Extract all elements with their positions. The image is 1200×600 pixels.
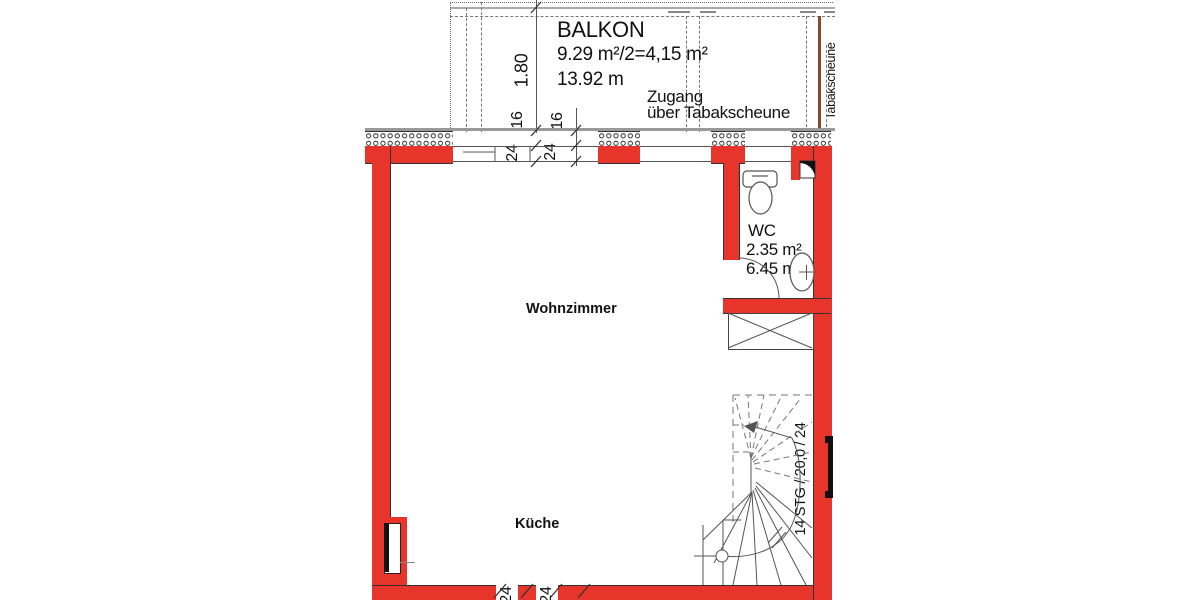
sink-icon bbox=[790, 253, 814, 291]
dimension-ticks bbox=[494, 2, 590, 598]
shaft-cross bbox=[728, 313, 812, 348]
stair-walk-line bbox=[694, 421, 800, 562]
window-wedge-marker bbox=[800, 161, 815, 178]
plan-linework bbox=[0, 0, 1200, 600]
stair-dashed-boundary bbox=[733, 395, 812, 522]
stair-treads-lower bbox=[703, 455, 812, 585]
window-details bbox=[463, 146, 530, 161]
toilet-icon bbox=[743, 171, 777, 214]
floor-plan: BALKON 9.29 m²/2=4,15 m² 13.92 m Zugang … bbox=[0, 0, 1200, 600]
wc-door-arc bbox=[739, 258, 779, 298]
staircase bbox=[694, 395, 812, 585]
